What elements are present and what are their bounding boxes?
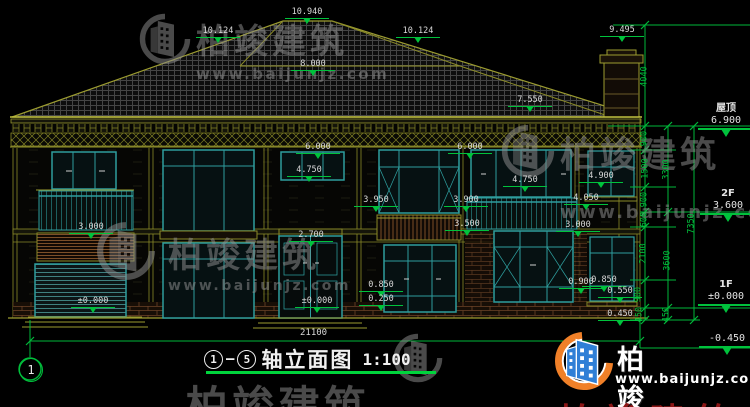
floor-name: 2F [700,188,750,199]
level-triangle-mark [89,307,97,317]
level-value: 4.750 [287,166,331,175]
level-value: 3.000 [556,221,600,230]
level-triangle-mark [303,18,311,28]
level-value: 0.850 [359,281,403,290]
level-value: 3.000 [69,223,113,232]
level-triangle-mark [597,182,605,192]
floor-elevation: 6.900 [698,115,750,126]
drawing-title: 1 — 5 轴立面图 1:100 [204,344,411,374]
floor-elevation: -0.450 [699,333,750,344]
vertical-dimension: 7350 [687,206,698,242]
level-triangle-mark [574,231,582,241]
level-label: 3.900 [444,196,488,216]
level-value: 4.050 [564,194,608,203]
level-label: 3.000 [556,221,600,241]
vertical-dimension: 600 [640,202,651,238]
title-axis-bubble-start: 1 [204,350,223,369]
level-label: 3.950 [354,196,398,216]
level-label: 10.124 [396,27,440,47]
chimney [600,50,643,117]
title-underline [206,371,436,374]
vertical-dimension: 4040 [640,59,651,95]
floor-triangle-mark [723,214,733,227]
axis-bubble: 1 [19,358,43,382]
level-label: ±0.000 [295,297,339,317]
level-label: 7.550 [508,96,552,116]
watermark-red-clipped: 柏竣建筑 [558,393,742,407]
title-dash: — [226,351,234,367]
floor-level: 屋顶6.900 [698,99,750,142]
level-label: 4.050 [564,194,608,214]
level-label: 3.000 [69,223,113,243]
level-label: 9.495 [600,26,644,46]
level-triangle-mark [307,241,315,251]
level-value: ±0.000 [71,297,115,306]
level-triangle-mark [414,37,422,47]
vertical-dimension: 2100 [639,236,650,272]
level-value: 10.940 [285,8,329,17]
level-value: 8.000 [291,60,335,69]
level-triangle-mark [466,153,474,163]
brand-url: www.baijunjz.com [615,372,750,387]
vertical-dimension: 3600 [663,243,674,279]
level-label: 3.500 [445,220,489,240]
level-value: 0.850 [582,276,626,285]
level-triangle-mark [618,36,626,46]
level-label: 4.900 [579,172,623,192]
level-value: 0.250 [359,295,403,304]
level-triangle-mark [305,176,313,186]
floor-elevation: 3.600 [700,200,750,211]
level-label: 4.750 [503,176,547,196]
level-label: 10.940 [285,8,329,28]
level-value: 4.900 [579,172,623,181]
level-label: ±0.000 [71,297,115,317]
floor-triangle-mark [721,305,731,318]
level-triangle-mark [313,307,321,317]
watermark-logo [500,123,556,179]
overall-width-dimension: 21100 [300,328,327,338]
watermark-url: www.baijunjz.com [168,278,351,294]
floor-triangle-mark [722,347,732,360]
level-triangle-mark [87,233,95,243]
floor-level: -0.450 [699,332,750,360]
title-scale: 1:100 [362,350,410,369]
level-label: 6.000 [296,143,340,163]
floor-elevation: ±0.000 [698,291,750,302]
level-value: 9.495 [600,26,644,35]
level-label: 2.700 [289,231,333,251]
level-label: 8.000 [291,60,335,80]
level-value: 4.750 [503,176,547,185]
level-triangle-mark [214,37,222,47]
level-triangle-mark [377,305,385,315]
level-value: 7.550 [508,96,552,105]
level-triangle-mark [463,230,471,240]
level-value: ±0.000 [295,297,339,306]
vertical-dimension: 450 [635,297,646,333]
level-triangle-mark [462,206,470,216]
vertical-dimension: 450 [662,297,673,333]
level-triangle-mark [309,70,317,80]
level-value: 3.500 [445,220,489,229]
brand-logo-icon [553,330,615,394]
title-name: 轴立面图 [261,344,353,374]
floor-triangle-mark [721,129,731,142]
level-triangle-mark [616,297,624,307]
watermark-brand: 柏竣建筑 [186,373,370,407]
watermark-logo [138,12,192,66]
level-triangle-mark [526,106,534,116]
level-value: 2.700 [289,231,333,240]
level-value: 10.124 [396,27,440,36]
floor-level: 2F3.600 [700,188,750,227]
floor-name: 屋顶 [698,99,750,114]
level-label: 4.750 [287,166,331,186]
brand-watermark-color: 柏竣建筑 www.baijunjz.com [553,330,615,398]
level-triangle-mark [616,320,624,330]
level-value: 10.124 [196,27,240,36]
level-triangle-mark [314,153,322,163]
level-value: 3.950 [354,196,398,205]
floor-level: 1F±0.000 [698,279,750,318]
level-label: 10.124 [196,27,240,47]
floor-name: 1F [698,279,750,290]
level-triangle-mark [372,206,380,216]
level-label: 6.000 [448,143,492,163]
level-triangle-mark [582,204,590,214]
level-triangle-mark [521,186,529,196]
level-value: 6.000 [296,143,340,152]
cad-elevation-screenshot: 柏竣建筑 www.baijunjz.com 柏竣建筑 www.baijunjz.… [0,0,750,407]
watermark: 柏竣建筑 [186,373,370,407]
vertical-dimension: 3300 [662,152,673,188]
level-label: 0.250 [359,295,403,315]
level-value: 6.000 [448,143,492,152]
title-axis-bubble-end: 5 [237,350,256,369]
level-value: 3.900 [444,196,488,205]
